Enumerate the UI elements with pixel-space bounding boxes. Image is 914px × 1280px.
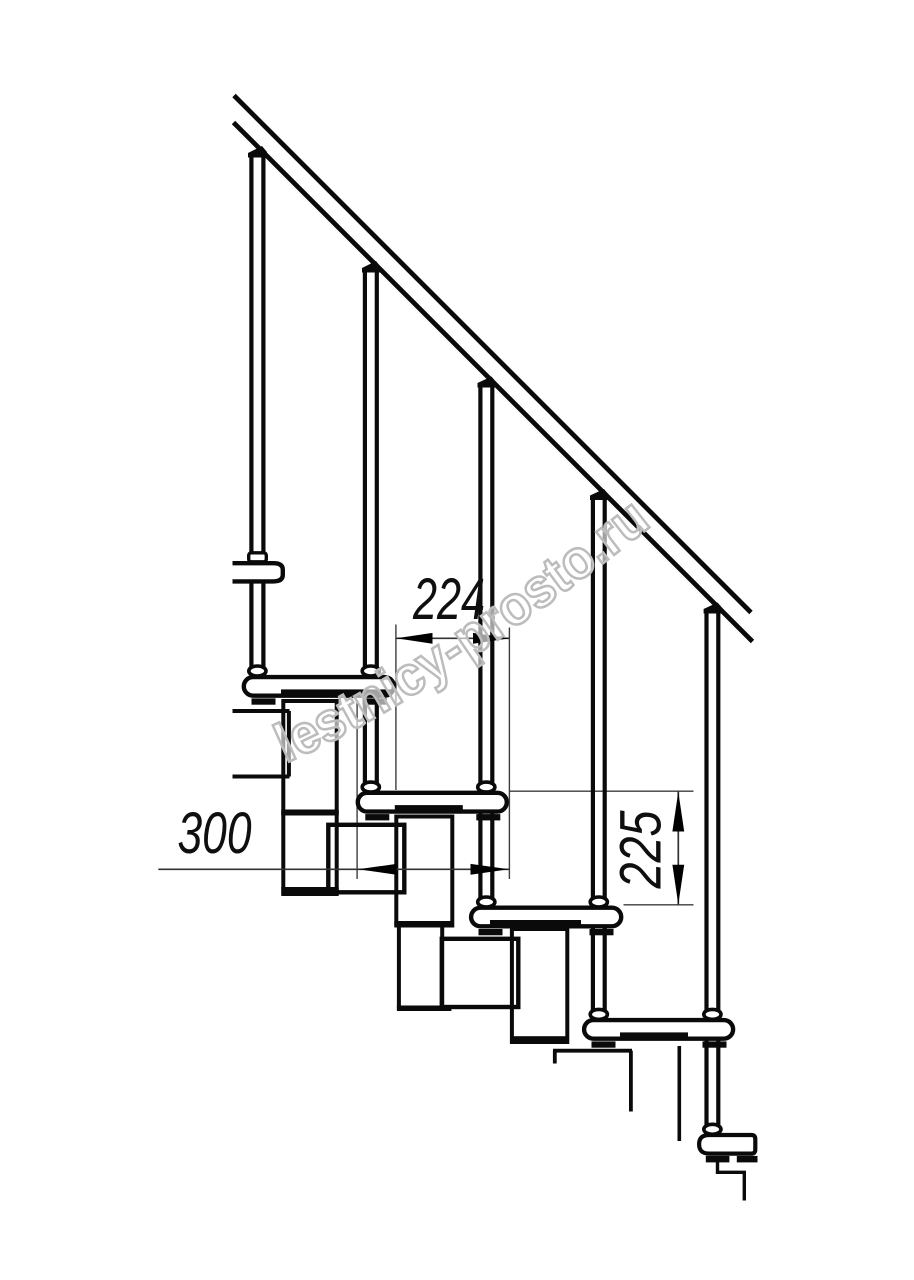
svg-text:225: 225 [609,810,674,889]
svg-text:300: 300 [178,801,252,866]
svg-text:lestnicy-prosto.ru: lestnicy-prosto.ru [265,486,659,774]
